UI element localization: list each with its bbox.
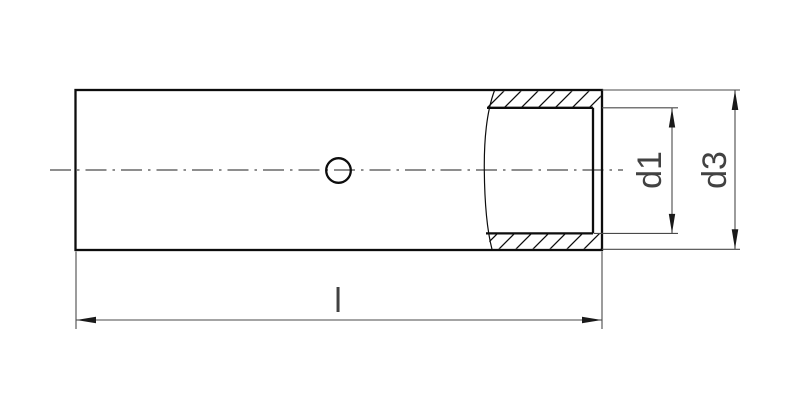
section-hatching-bottom-wall xyxy=(487,234,601,249)
l-label: l xyxy=(334,282,342,320)
d1-label: d1 xyxy=(631,151,669,189)
section-hatching-top-wall xyxy=(488,91,601,107)
dimension-d1: d1 xyxy=(594,108,678,234)
drawing-canvas: d1 d3 l xyxy=(0,0,800,406)
d3-arrowhead-up xyxy=(732,90,739,110)
d1-arrowhead-down xyxy=(669,214,675,233)
dimension-l: l xyxy=(76,252,602,330)
bore-lines xyxy=(486,108,593,234)
d3-arrowhead-down xyxy=(732,229,739,249)
d1-arrowhead-up xyxy=(669,108,675,127)
d3-label: d3 xyxy=(696,151,734,189)
technical-drawing: d1 d3 l xyxy=(0,0,800,406)
l-arrowhead-left xyxy=(76,317,96,324)
l-arrowhead-right xyxy=(582,317,602,324)
